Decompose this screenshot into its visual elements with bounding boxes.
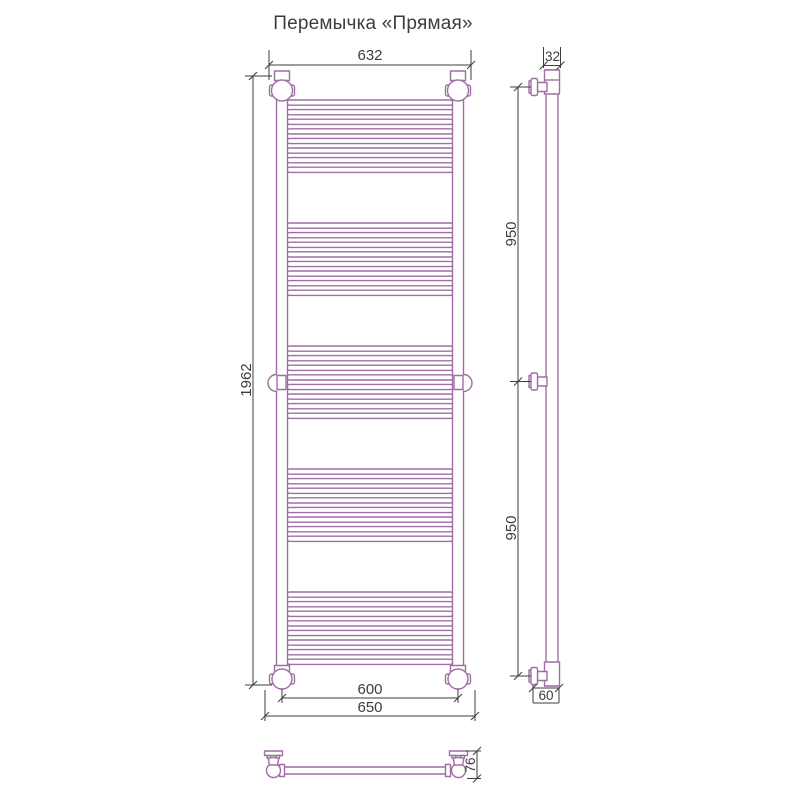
drawing-canvas: Перемычка «Прямая» (0, 0, 800, 800)
technical-drawing: Перемычка «Прямая» (0, 0, 800, 800)
left-collector (277, 80, 288, 666)
plan-left-bracket (265, 751, 283, 765)
rung-group-3 (287, 346, 453, 418)
top-left-fitting (270, 71, 295, 101)
top-right-fitting (446, 71, 471, 101)
dim-32: 32 (540, 47, 565, 70)
dim-1962-label: 1962 (238, 363, 255, 396)
rung-group-5 (287, 592, 453, 664)
bottom-right-fitting (446, 666, 471, 690)
plan-view: 76 (265, 747, 482, 783)
dim-76-label: 76 (463, 757, 478, 772)
dim-60-label: 60 (538, 688, 553, 703)
side-collector-tube (546, 70, 558, 686)
rung-group-4 (287, 469, 453, 541)
dim-632-label: 632 (357, 47, 382, 64)
dim-950-spans: 950 950 (503, 83, 531, 680)
dim-950-lower-label: 950 (503, 515, 520, 540)
front-view: 632 1962 600 650 (238, 47, 479, 721)
drawing-title: Перемычка «Прямая» (273, 13, 473, 34)
plan-crossbar (281, 767, 449, 774)
side-view: 32 950 950 60 (503, 47, 565, 703)
dim-1962: 1962 (238, 72, 272, 689)
wall-bracket-middle (529, 373, 547, 390)
dim-950-upper-label: 950 (503, 221, 520, 246)
dim-32-label: 32 (545, 49, 560, 64)
rung-group-1 (287, 100, 453, 172)
right-collector (453, 80, 464, 666)
dim-60: 60 (529, 684, 563, 703)
dim-632: 632 (265, 47, 475, 80)
dim-650-label: 650 (357, 699, 382, 716)
bottom-left-fitting (270, 666, 295, 690)
rung-group-2 (287, 223, 453, 295)
dim-600-label: 600 (357, 681, 382, 698)
